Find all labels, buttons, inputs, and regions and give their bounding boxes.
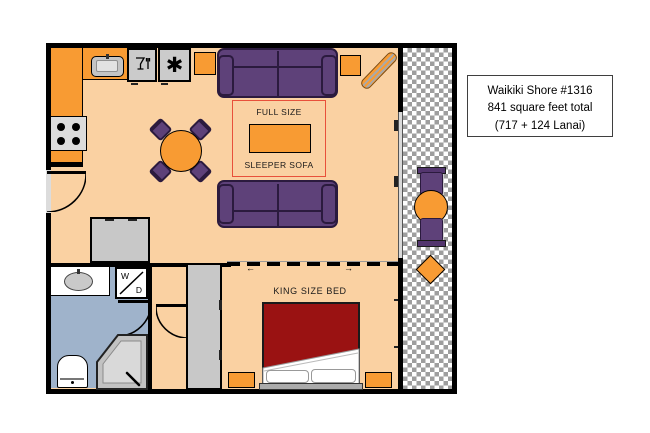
dishwasher-icon (133, 57, 152, 73)
lanai-chair (420, 218, 443, 242)
dryer-letter: D (136, 285, 142, 295)
toilet-seam (60, 378, 84, 380)
end-table (340, 55, 361, 76)
floor-plan-page: ✱ FULL SIZE SLEEPER SOFA (0, 0, 650, 433)
bed-pillow (311, 369, 356, 383)
washer-dryer: W D (115, 267, 148, 299)
closet-door-mark (128, 219, 137, 221)
closet-door-mark (105, 219, 114, 221)
vanity-sink-icon (64, 272, 93, 291)
nightstand (365, 372, 392, 388)
shower-stall (96, 334, 148, 390)
partition-slide-arrow-right: → (344, 263, 353, 273)
lanai-chair-back (417, 240, 446, 247)
info-line-2: 841 square feet total (468, 100, 612, 117)
bed-pillow (266, 370, 309, 383)
sofa-seam (277, 51, 279, 96)
sofa-armrest (218, 55, 234, 96)
coffee-table (249, 124, 311, 153)
cabinet-handle (131, 83, 138, 85)
stove-burner (72, 123, 80, 131)
storage-closet (90, 217, 150, 263)
stove-burner (57, 137, 65, 145)
bathroom-vanity (51, 267, 110, 296)
cabinet-handle (161, 83, 168, 85)
freezer-icon: ✱ (158, 48, 191, 82)
kitchen-sink-icon (91, 56, 124, 77)
sofa-seam (277, 184, 279, 227)
closet-door-mark (219, 350, 222, 360)
kitchen-wall-cap (46, 162, 83, 167)
sofa-bottom (217, 180, 338, 228)
dishwasher (127, 48, 157, 82)
lanai-sliding-door (398, 112, 403, 258)
sink-faucet (106, 54, 109, 59)
partition-slide-arrow-left: ← (246, 263, 255, 273)
bed-headboard (259, 383, 363, 390)
sink-basin (96, 60, 118, 72)
toilet (57, 355, 88, 388)
bedroom-closet (186, 263, 222, 390)
info-line-3: (717 + 124 Lanai) (468, 118, 612, 135)
vanity-faucet (77, 269, 80, 274)
info-box: Waikiki Shore #1316 841 square feet tota… (467, 75, 613, 137)
stove-burner (72, 137, 80, 145)
freezer-glyph: ✱ (166, 53, 184, 77)
sofa-armrest (321, 55, 337, 96)
sofa-top (217, 48, 338, 98)
sliding-door-handle (394, 120, 398, 131)
wall-mark (394, 346, 398, 348)
sofa-label-top: FULL SIZE (232, 106, 326, 118)
bathroom-door-swing-arc (118, 303, 151, 336)
bed-label: KING SIZE BED (240, 285, 380, 297)
sofa-armrest (321, 184, 337, 224)
sliding-door-handle (394, 176, 398, 187)
end-table (194, 52, 216, 75)
stove-burner (57, 123, 65, 131)
sofa-label-bottom: SLEEPER SOFA (232, 159, 326, 171)
closet-door-mark (219, 300, 222, 310)
dining-table (160, 130, 202, 172)
washer-letter: W (121, 271, 129, 281)
toilet-flush-dot (71, 381, 74, 384)
nightstand (228, 372, 255, 388)
entry-door-swing-arc (47, 174, 86, 212)
wall-mark (394, 299, 398, 301)
sofa-armrest (218, 184, 234, 224)
stove (50, 116, 87, 151)
info-line-1: Waikiki Shore #1316 (468, 83, 612, 100)
hall-door-swing-arc (156, 307, 188, 338)
